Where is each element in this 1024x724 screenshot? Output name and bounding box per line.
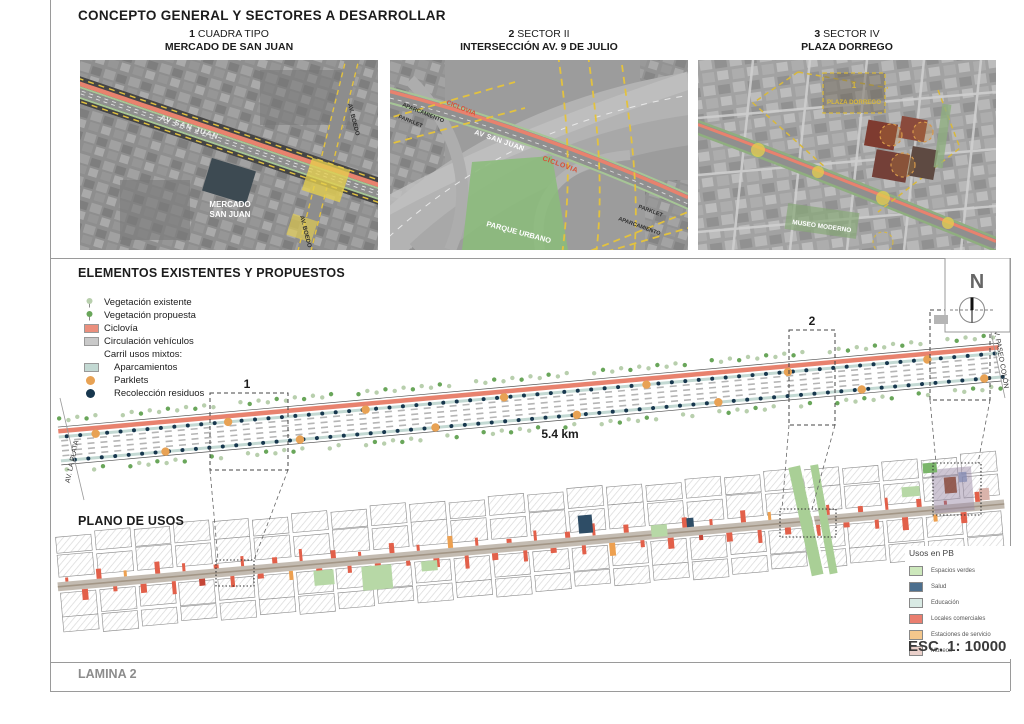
- sector-3-name: SECTOR IV: [823, 28, 879, 40]
- street-band: [57, 332, 1006, 474]
- plano-strip: [53, 449, 1009, 641]
- color-swatch: [909, 614, 923, 624]
- usos-legend-title: Usos en PB: [909, 548, 1012, 558]
- frame-bottom-line: [50, 691, 1010, 692]
- color-swatch: [909, 566, 923, 576]
- sector-2-number: 2: [508, 28, 514, 40]
- presentation-board: CONCEPTO GENERAL Y SECTORES A DESARROLLA…: [0, 0, 1024, 724]
- map3-plaza-dorrego-area: [823, 73, 885, 113]
- usos-legend-label: Locales comerciales: [931, 616, 985, 622]
- color-swatch: [909, 598, 923, 608]
- north-label: N: [970, 271, 984, 293]
- caption-sector-2: 2 SECTOR II INTERSECCIÓN AV. 9 DE JULIO: [390, 28, 688, 54]
- map-sector-4: 1 PLAZA DORREGO MUSEO MODERNO: [698, 60, 996, 250]
- sector3-building-icon: [934, 315, 948, 324]
- sheet-number: LAMINA 2: [78, 667, 137, 681]
- band-marker-2: 2: [809, 314, 816, 328]
- north-arrow: N: [945, 258, 1010, 332]
- sector-2-place: INTERSECCIÓN AV. 9 DE JULIO: [390, 41, 688, 54]
- color-swatch: [909, 582, 923, 592]
- sector-3-number: 3: [814, 28, 820, 40]
- caption-sector-1: 1 CUADRA TIPO MERCADO DE SAN JUAN: [80, 28, 378, 54]
- usos-legend-label: Salud: [931, 584, 946, 590]
- band-marker-1: 1: [244, 377, 251, 391]
- map3-plaza-number: 1: [852, 81, 857, 90]
- scale-label: ESC. 1: 10000: [908, 638, 1006, 655]
- map1-mercado-label-line1: MERCADO: [209, 200, 250, 209]
- distance-label: 5.4 km: [541, 427, 578, 441]
- usos-legend-item: Espacios verdes: [909, 563, 1012, 579]
- sector-1-name: CUADRA TIPO: [198, 28, 269, 40]
- usos-legend-item: Locales comerciales: [909, 611, 1012, 627]
- sector-2-name: SECTOR II: [517, 28, 569, 40]
- usos-legend-item: Educación: [909, 595, 1012, 611]
- usos-legend-item: Salud: [909, 579, 1012, 595]
- usos-legend-label: Espacios verdes: [931, 568, 975, 574]
- street-and-plan-drawing: 1 2 3 5.4 km AV. LA PLATA AV. PASEO COLÓ…: [0, 258, 1024, 691]
- caption-sector-3: 3 SECTOR IV PLAZA DORREGO: [698, 28, 996, 54]
- map-cuadra-tipo: AV SAN JUAN MERCADO SAN JUAN AV. BOEDO A…: [80, 60, 378, 250]
- map-sector-2: APARCAMIENTO CICLOVIA PARKLET AV SAN JUA…: [390, 60, 688, 250]
- sector-1-number: 1: [189, 28, 195, 40]
- map3-plaza-dorrego-label: PLAZA DORREGO: [827, 99, 881, 106]
- sector-3-place: PLAZA DORREGO: [698, 41, 996, 54]
- sector-1-place: MERCADO DE SAN JUAN: [80, 41, 378, 54]
- page-title: CONCEPTO GENERAL Y SECTORES A DESARROLLA…: [78, 8, 446, 23]
- usos-legend-label: Educación: [931, 600, 959, 606]
- plano-section-title: PLANO DE USOS: [78, 514, 184, 528]
- map1-mercado-label-line2: SAN JUAN: [210, 210, 251, 219]
